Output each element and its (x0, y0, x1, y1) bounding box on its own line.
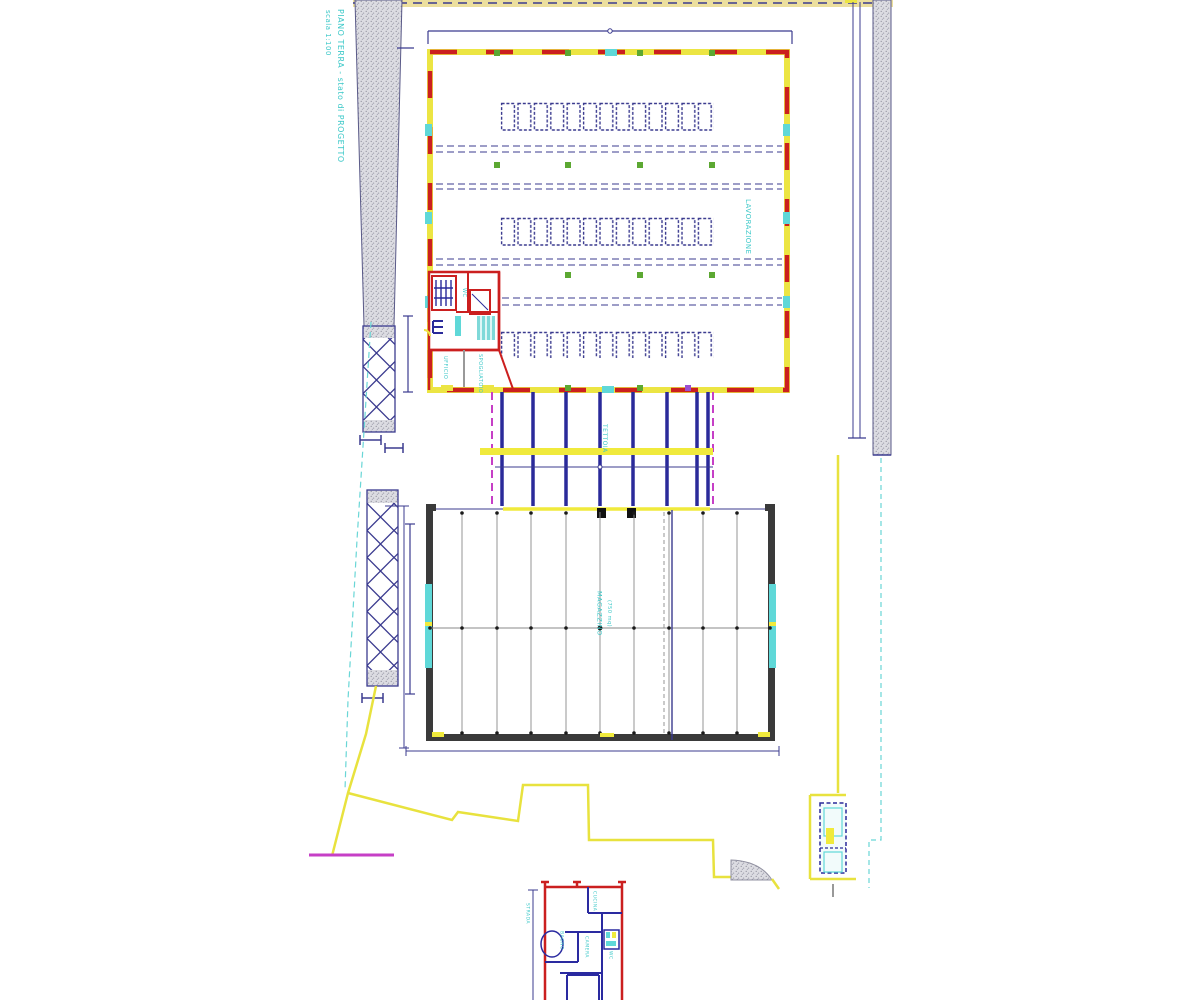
label-wc-service: WC (461, 288, 466, 297)
label-side-note: STRADA (524, 903, 529, 924)
label-magazzino-area: (750 mq) (606, 600, 611, 627)
label-camera: CAMERA (583, 936, 588, 958)
plan-title: PIANO TERRA - stato di PROGETTO (336, 9, 344, 163)
bottom-small-plan (528, 882, 626, 1000)
upper-ramp (360, 316, 413, 453)
label-lavorazione: LAVORAZIONE (744, 199, 751, 254)
label-magazzino: MAGAZZINO (596, 591, 603, 636)
rack-row-3 (500, 331, 714, 358)
label-wc-small-plan: WC (607, 951, 612, 960)
lower-ramp (362, 490, 415, 703)
canopy-yellow-band (480, 448, 713, 455)
label-cucina: CUCINA (591, 891, 596, 911)
canopy-connector (480, 392, 713, 508)
right-small-structure (810, 795, 856, 897)
rack-row-1 (500, 102, 714, 132)
lower-building (385, 504, 779, 756)
floor-plan-drawing (0, 0, 1200, 1000)
service-block (424, 272, 513, 391)
rack-row-2 (500, 217, 714, 247)
plan-scale-note: scala 1:100 (324, 10, 331, 56)
label-bagno: BAGNO (558, 931, 563, 950)
label-spogliatoio: SPOGLIATOIO (477, 354, 482, 393)
label-tettoia: TETTOIA (601, 424, 607, 453)
floor-plan-canvas: PIANO TERRA - stato di PROGETTO scala 1:… (0, 0, 1200, 1000)
label-ufficio: UFFICIO (442, 356, 447, 379)
